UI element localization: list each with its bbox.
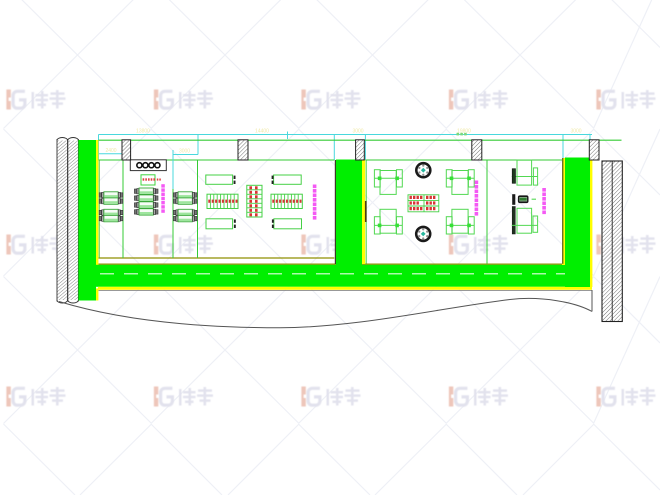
- svg-text:3000: 3000: [570, 129, 581, 135]
- svg-text:2400: 2400: [105, 148, 116, 154]
- svg-text:3000: 3000: [179, 149, 190, 155]
- svg-text:14400: 14400: [255, 129, 269, 135]
- svg-text:3000: 3000: [352, 129, 363, 135]
- svg-text:13800: 13800: [136, 129, 150, 135]
